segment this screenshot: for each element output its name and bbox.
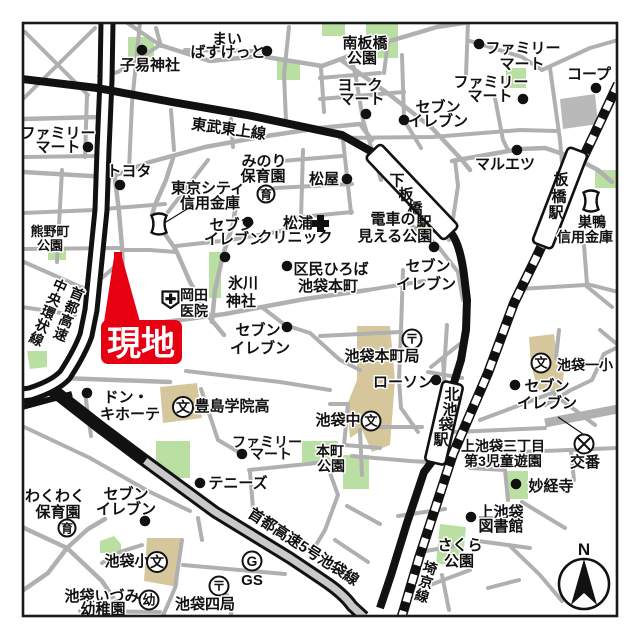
svg-text:トヨタ: トヨタ — [106, 163, 151, 180]
svg-text:コープ: コープ — [567, 66, 612, 83]
svg-text:ローソン: ローソン — [373, 374, 433, 391]
svg-text:G: G — [247, 553, 258, 569]
svg-text:第3児童遊園: 第3児童遊園 — [464, 453, 542, 469]
svg-text:見える公園: 見える公園 — [357, 228, 433, 245]
svg-text:子易神社: 子易神社 — [120, 56, 180, 74]
svg-text:イレブン: イレブン — [396, 275, 456, 293]
svg-text:池袋本町局: 池袋本町局 — [344, 347, 419, 365]
svg-text:イレブン: イレブン — [517, 394, 577, 412]
svg-text:公園: 公園 — [347, 50, 377, 67]
svg-text:上池袋三丁目: 上池袋三丁目 — [461, 438, 545, 454]
svg-text:池袋一小: 池袋一小 — [557, 357, 613, 373]
svg-text:マート: マート — [339, 91, 384, 108]
svg-text:セブン: セブン — [235, 321, 280, 339]
svg-text:幼: 幼 — [142, 593, 155, 608]
svg-text:交番: 交番 — [570, 453, 601, 471]
svg-text:マルエツ: マルエツ — [475, 156, 535, 173]
svg-text:公園: 公園 — [317, 458, 345, 474]
svg-text:電車の: 電車の — [370, 210, 415, 228]
svg-text:本町: 本町 — [316, 443, 344, 459]
svg-text:イレブン: イレブン — [408, 112, 468, 130]
svg-text:テニーズ: テニーズ — [208, 474, 267, 492]
svg-text:信用金庫: 信用金庫 — [180, 194, 240, 212]
svg-text:医院: 医院 — [180, 303, 208, 319]
svg-text:図書館: 図書館 — [478, 517, 523, 535]
svg-text:さくら: さくら — [437, 537, 482, 554]
svg-text:現地: 現地 — [107, 325, 175, 363]
svg-text:区民ひろば: 区民ひろば — [293, 261, 368, 278]
svg-text:マート: マート — [499, 56, 544, 73]
svg-text:ばすけっと: ばすけっと — [190, 44, 265, 61]
svg-text:熊野町: 熊野町 — [30, 224, 69, 239]
svg-text:イレブン: イレブン — [204, 230, 264, 248]
svg-text:わくわく: わくわく — [25, 488, 85, 505]
svg-text:キホーテ: キホーテ — [100, 406, 160, 423]
svg-text:文: 文 — [176, 399, 191, 415]
svg-text:育: 育 — [260, 186, 272, 201]
svg-text:イレブン: イレブン — [230, 339, 290, 357]
svg-text:育: 育 — [61, 520, 73, 535]
svg-text:文: 文 — [364, 414, 378, 429]
svg-text:橋: 橋 — [551, 187, 567, 205]
svg-text:氷川: 氷川 — [228, 274, 258, 292]
svg-text:保育園: 保育園 — [34, 503, 80, 521]
svg-text:文: 文 — [150, 554, 165, 570]
svg-text:イレブン: イレブン — [96, 500, 156, 518]
svg-text:妙経寺: 妙経寺 — [528, 477, 573, 495]
svg-text:〒: 〒 — [212, 579, 225, 594]
svg-text:板: 板 — [553, 170, 569, 188]
svg-text:保育園: 保育園 — [239, 167, 285, 185]
svg-text:マート: マート — [467, 88, 512, 105]
svg-text:公園: 公園 — [444, 553, 474, 570]
svg-text:神社: 神社 — [226, 292, 256, 310]
svg-text:ファミリー: ファミリー — [485, 40, 560, 57]
svg-text:GS: GS — [241, 572, 263, 589]
svg-text:駅: 駅 — [547, 204, 564, 221]
svg-text:信用金庫: 信用金庫 — [557, 229, 613, 245]
svg-text:松屋: 松屋 — [309, 170, 339, 188]
svg-text:池袋四局: 池袋四局 — [175, 595, 235, 613]
svg-text:マート: マート — [250, 446, 292, 462]
svg-text:ドン・: ドン・ — [103, 389, 148, 406]
svg-text:岡田: 岡田 — [180, 287, 208, 303]
svg-text:N: N — [578, 540, 590, 559]
svg-text:池袋本町: 池袋本町 — [298, 277, 358, 295]
svg-text:池袋小: 池袋小 — [104, 552, 149, 570]
svg-text:池袋中: 池袋中 — [315, 411, 360, 429]
svg-text:駅: 駅 — [432, 431, 449, 448]
svg-text:マート: マート — [35, 139, 80, 156]
svg-text:豊島学院高: 豊島学院高 — [194, 397, 269, 415]
svg-text:〒: 〒 — [405, 332, 418, 347]
svg-text:セブン: セブン — [405, 257, 450, 275]
svg-text:公園: 公園 — [37, 238, 63, 253]
svg-text:文: 文 — [534, 356, 548, 371]
svg-text:巣鴨: 巣鴨 — [577, 214, 606, 230]
svg-text:セブン: セブン — [524, 377, 569, 395]
